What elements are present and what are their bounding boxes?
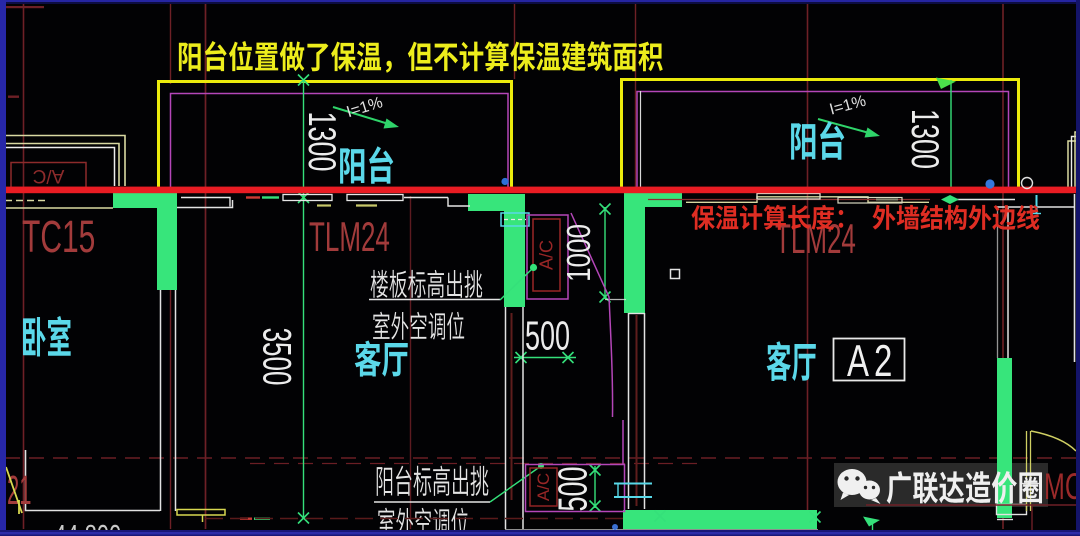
svg-text:MC: MC — [1044, 465, 1080, 507]
svg-text:1300: 1300 — [299, 111, 342, 171]
svg-text:A/C: A/C — [537, 240, 557, 270]
svg-text:TLM24: TLM24 — [309, 215, 390, 261]
svg-text:3500: 3500 — [254, 328, 299, 386]
svg-text:TC15: TC15 — [22, 212, 95, 263]
svg-text:A/C: A/C — [534, 473, 553, 501]
svg-text:500: 500 — [551, 466, 596, 511]
svg-text:A2: A2 — [847, 337, 897, 386]
svg-text:A/C: A/C — [33, 165, 65, 186]
svg-text:1300: 1300 — [902, 109, 945, 169]
svg-text:500: 500 — [525, 314, 570, 359]
svg-text:1000: 1000 — [561, 224, 598, 282]
